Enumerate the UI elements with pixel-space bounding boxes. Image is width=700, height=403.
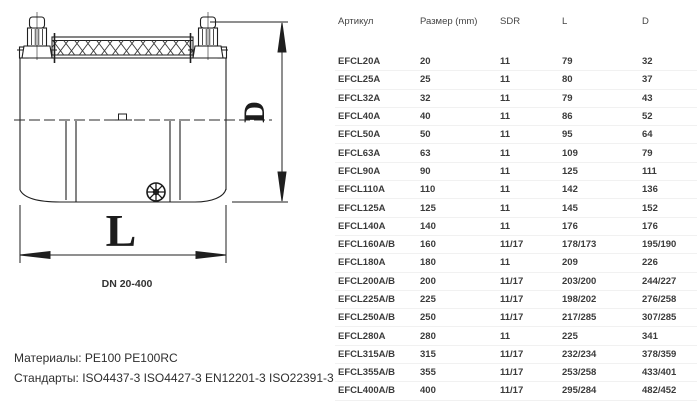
table-cell: 280 (420, 331, 500, 342)
table-row: EFCL200A/B20011/17203/200244/227 (335, 273, 697, 291)
table-cell: 178/173 (562, 239, 642, 250)
table-cell: 250 (420, 312, 500, 323)
table-cell: EFCL25A (338, 74, 420, 85)
table-row: EFCL250A/B25011/17217/285307/285 (335, 309, 697, 327)
table-cell: 86 (562, 111, 642, 122)
table-row: EFCL90A9011125111 (335, 163, 697, 181)
table-row: EFCL40A40118652 (335, 108, 697, 126)
table-cell: EFCL140A (338, 221, 420, 232)
table-cell: 125 (420, 203, 500, 214)
table-cell: 32 (642, 56, 697, 67)
table-cell: 11 (500, 74, 562, 85)
table-row: EFCL20A20117932 (335, 53, 697, 71)
table-row: EFCL400A/B40011/17295/284482/452 (335, 382, 697, 400)
column-header-diameter: D (642, 16, 697, 27)
table-cell: EFCL90A (338, 166, 420, 177)
table-row: EFCL315A/B31511/17232/234378/359 (335, 346, 697, 364)
table-cell: EFCL400A/B (338, 385, 420, 396)
table-cell: 11/17 (500, 312, 562, 323)
table-cell: 433/401 (642, 367, 697, 378)
table-cell: 315 (420, 349, 500, 360)
table-cell: 109 (562, 148, 642, 159)
column-header-article: Артикул (338, 16, 420, 27)
table-cell: 232/234 (562, 349, 642, 360)
table-cell: 111 (642, 166, 697, 177)
table-cell: 11 (500, 111, 562, 122)
table-cell: 43 (642, 93, 697, 104)
table-row: EFCL63A631110979 (335, 144, 697, 162)
table-cell: 52 (642, 111, 697, 122)
table-cell: 11/17 (500, 367, 562, 378)
table-cell: 11/17 (500, 239, 562, 250)
table-row: EFCL355A/B35511/17253/258433/401 (335, 364, 697, 382)
table-cell: 11 (500, 184, 562, 195)
table-cell: EFCL32A (338, 93, 420, 104)
table-cell: EFCL355A/B (338, 367, 420, 378)
table-cell: 11 (500, 56, 562, 67)
table-cell: 244/227 (642, 276, 697, 287)
table-cell: 20 (420, 56, 500, 67)
table-cell: 125 (562, 166, 642, 177)
table-cell: 225 (562, 331, 642, 342)
table-cell: 11/17 (500, 294, 562, 305)
terminal-pin-left (17, 12, 57, 60)
table-row: EFCL160A/B16011/17178/173195/190 (335, 236, 697, 254)
column-header-size: Размер (mm) (420, 16, 500, 27)
table-cell: 152 (642, 203, 697, 214)
table-cell: EFCL180A (338, 257, 420, 268)
table-row: EFCL25A25118037 (335, 71, 697, 89)
table-cell: EFCL250A/B (338, 312, 420, 323)
table-cell: EFCL225A/B (338, 294, 420, 305)
table-cell: EFCL160A/B (338, 239, 420, 250)
table-cell: 180 (420, 257, 500, 268)
table-header-row: Артикул Размер (mm) SDR L D (335, 10, 697, 53)
table-cell: 482/452 (642, 385, 697, 396)
table-cell: 140 (420, 221, 500, 232)
table-row: EFCL280A28011225341 (335, 327, 697, 345)
table-cell: EFCL280A (338, 331, 420, 342)
table-cell: 142 (562, 184, 642, 195)
table-cell: 80 (562, 74, 642, 85)
table-cell: 307/285 (642, 312, 697, 323)
table-cell: 50 (420, 129, 500, 140)
table-cell: 11/17 (500, 276, 562, 287)
table-row: EFCL180A18011209226 (335, 254, 697, 272)
table-cell: 63 (420, 148, 500, 159)
table-cell: EFCL200A/B (338, 276, 420, 287)
table-cell: 226 (642, 257, 697, 268)
table-cell: 195/190 (642, 239, 697, 250)
table-cell: 37 (642, 74, 697, 85)
terminal-pin-right (188, 12, 228, 60)
table-cell: 253/258 (562, 367, 642, 378)
table-cell: 11 (500, 93, 562, 104)
table-cell: 11 (500, 148, 562, 159)
table-cell: 203/200 (562, 276, 642, 287)
table-row: EFCL110A11011142136 (335, 181, 697, 199)
materials-note: Материалы: PE100 PE100RC (14, 348, 330, 368)
table-cell: 176 (562, 221, 642, 232)
table-row: EFCL225A/B22511/17198/202276/258 (335, 291, 697, 309)
table-cell: 209 (562, 257, 642, 268)
table-rows: EFCL20A20117932EFCL25A25118037EFCL32A321… (335, 53, 697, 401)
table-cell: 198/202 (562, 294, 642, 305)
table-cell: 200 (420, 276, 500, 287)
table-cell: 341 (642, 331, 697, 342)
table-cell: 136 (642, 184, 697, 195)
table-row: EFCL50A50119564 (335, 126, 697, 144)
table-cell: 64 (642, 129, 697, 140)
table-row: EFCL125A12511145152 (335, 199, 697, 217)
table-row: EFCL32A32117943 (335, 90, 697, 108)
table-cell: 90 (420, 166, 500, 177)
table-cell: 95 (562, 129, 642, 140)
dimension-D-label: D (238, 101, 271, 123)
standards-note: Стандарты: ISO4437-3 ISO4427-3 EN12201-3… (14, 368, 330, 388)
coupling-drawing: D L DN 20-400 (0, 0, 332, 340)
table-cell: 217/285 (562, 312, 642, 323)
table-cell: 11 (500, 221, 562, 232)
table-cell: 40 (420, 111, 500, 122)
table-cell: EFCL40A (338, 111, 420, 122)
mold-date-wheel-icon (147, 183, 165, 201)
table-cell: 276/258 (642, 294, 697, 305)
table-cell: 11 (500, 203, 562, 214)
table-cell: EFCL315A/B (338, 349, 420, 360)
dn-range-caption: DN 20-400 (102, 278, 153, 290)
dimension-L-label: L (106, 205, 137, 256)
column-header-sdr: SDR (500, 16, 562, 27)
coupling-drawing-svg: D L DN 20-400 (0, 0, 332, 340)
datasheet-page: D L DN 20-400 Материалы: PE100 PE100RC С… (0, 0, 700, 403)
table-cell: 110 (420, 184, 500, 195)
notes-block: Материалы: PE100 PE100RC Стандарты: ISO4… (14, 348, 330, 388)
table-cell: 32 (420, 93, 500, 104)
table-cell: 176 (642, 221, 697, 232)
table-cell: EFCL50A (338, 129, 420, 140)
table-cell: 79 (562, 56, 642, 67)
table-cell: 11 (500, 331, 562, 342)
table-row: EFCL140A14011176176 (335, 218, 697, 236)
table-cell: 25 (420, 74, 500, 85)
table-cell: EFCL20A (338, 56, 420, 67)
table-cell: 11 (500, 129, 562, 140)
table-cell: 378/359 (642, 349, 697, 360)
table-cell: EFCL63A (338, 148, 420, 159)
table-cell: 79 (562, 93, 642, 104)
table-cell: 79 (642, 148, 697, 159)
table-cell: EFCL125A (338, 203, 420, 214)
table-cell: 400 (420, 385, 500, 396)
table-cell: 225 (420, 294, 500, 305)
spec-table: Артикул Размер (mm) SDR L D EFCL20A20117… (335, 10, 697, 401)
table-cell: 11/17 (500, 385, 562, 396)
table-cell: 160 (420, 239, 500, 250)
table-cell: 295/284 (562, 385, 642, 396)
table-cell: EFCL110A (338, 184, 420, 195)
table-cell: 145 (562, 203, 642, 214)
table-cell: 355 (420, 367, 500, 378)
table-cell: 11 (500, 166, 562, 177)
column-header-length: L (562, 16, 642, 27)
table-cell: 11/17 (500, 349, 562, 360)
table-cell: 11 (500, 257, 562, 268)
